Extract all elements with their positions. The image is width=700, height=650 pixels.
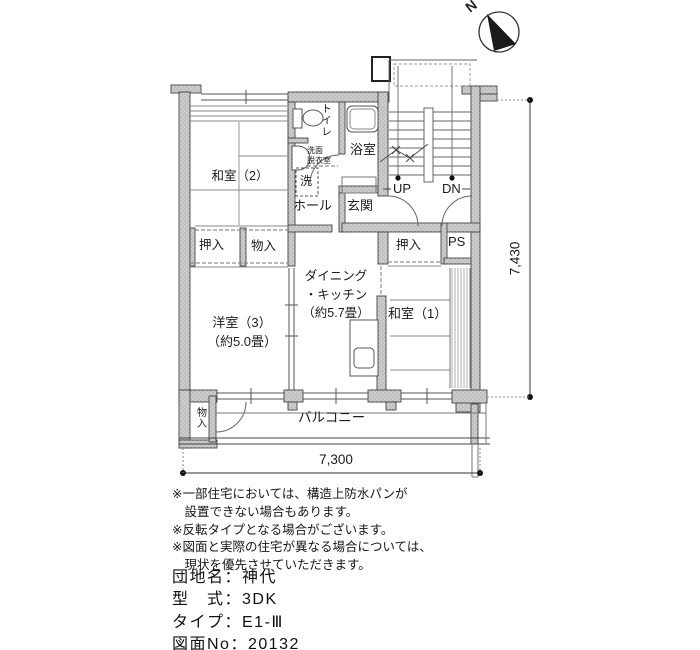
room-label-entrance: 玄関 [347,198,373,214]
closet-left-label: 押入 [199,238,224,254]
unit-type: 型 式：3DK [172,589,300,611]
room-label-washroom: 洗面 脱衣室 [307,146,331,165]
room-label-toilet: トイレ [319,103,332,138]
room-label-washitsu2: 和室（2） [190,169,290,185]
stairs-down-label: DN [442,181,461,197]
note-line: ※図面と実際の住宅が異なる場合については、 [172,539,432,557]
label-laundry: 洗 [300,174,312,189]
drawing-number: 図面No：20132 [172,634,300,650]
note-line: ※一部住宅においては、構造上防水パンが [172,486,432,504]
room-label-washitsu1: 和室（1） [388,306,447,322]
closet-right-label: 押入 [396,238,421,254]
stairs [380,60,477,189]
room-label-bath: 浴室 [350,142,376,158]
room-label-hall: ホール [293,198,332,214]
compass-icon [479,12,519,52]
storage-top-label: 物入 [251,239,276,255]
shutter-hatch [450,268,470,388]
disclaimer-notes: ※一部住宅においては、構造上防水パンが 設置できない場合もあります。 ※反転タイ… [172,486,432,575]
room-label-yoshitsu3: 洋室（3） （約5.0畳） [194,314,290,351]
plan-type: タイプ：E1-Ⅲ [172,612,300,634]
floor-plan-page: N 和室（2） トイレ 洗面 脱衣室 洗 浴室 ホール 玄関 UP DN 押入 … [0,0,700,650]
toilet-tank-icon [293,109,302,128]
estate-name: 団地名：神代 [172,567,300,589]
pipe-space-label: PS [448,234,465,250]
storage-bottom-label: 物入 [193,407,206,429]
dimension-width: 7,300 [286,452,386,469]
stairs-up-label: UP [393,181,411,197]
plan-info-block: 団地名：神代 型 式：3DK タイプ：E1-Ⅲ 図面No：20132 [172,567,300,650]
note-line: 設置できない場合もあります。 [172,504,432,522]
note-line: ※反転タイプとなる場合がございます。 [172,522,432,540]
room-label-dining-kitchen: ダイニング ・キッチン （約5.7畳） [292,267,380,323]
kitchen-sink-icon [354,348,374,368]
balcony-label: バルコニー [298,410,365,427]
dimension-height: 7,430 [508,218,525,298]
